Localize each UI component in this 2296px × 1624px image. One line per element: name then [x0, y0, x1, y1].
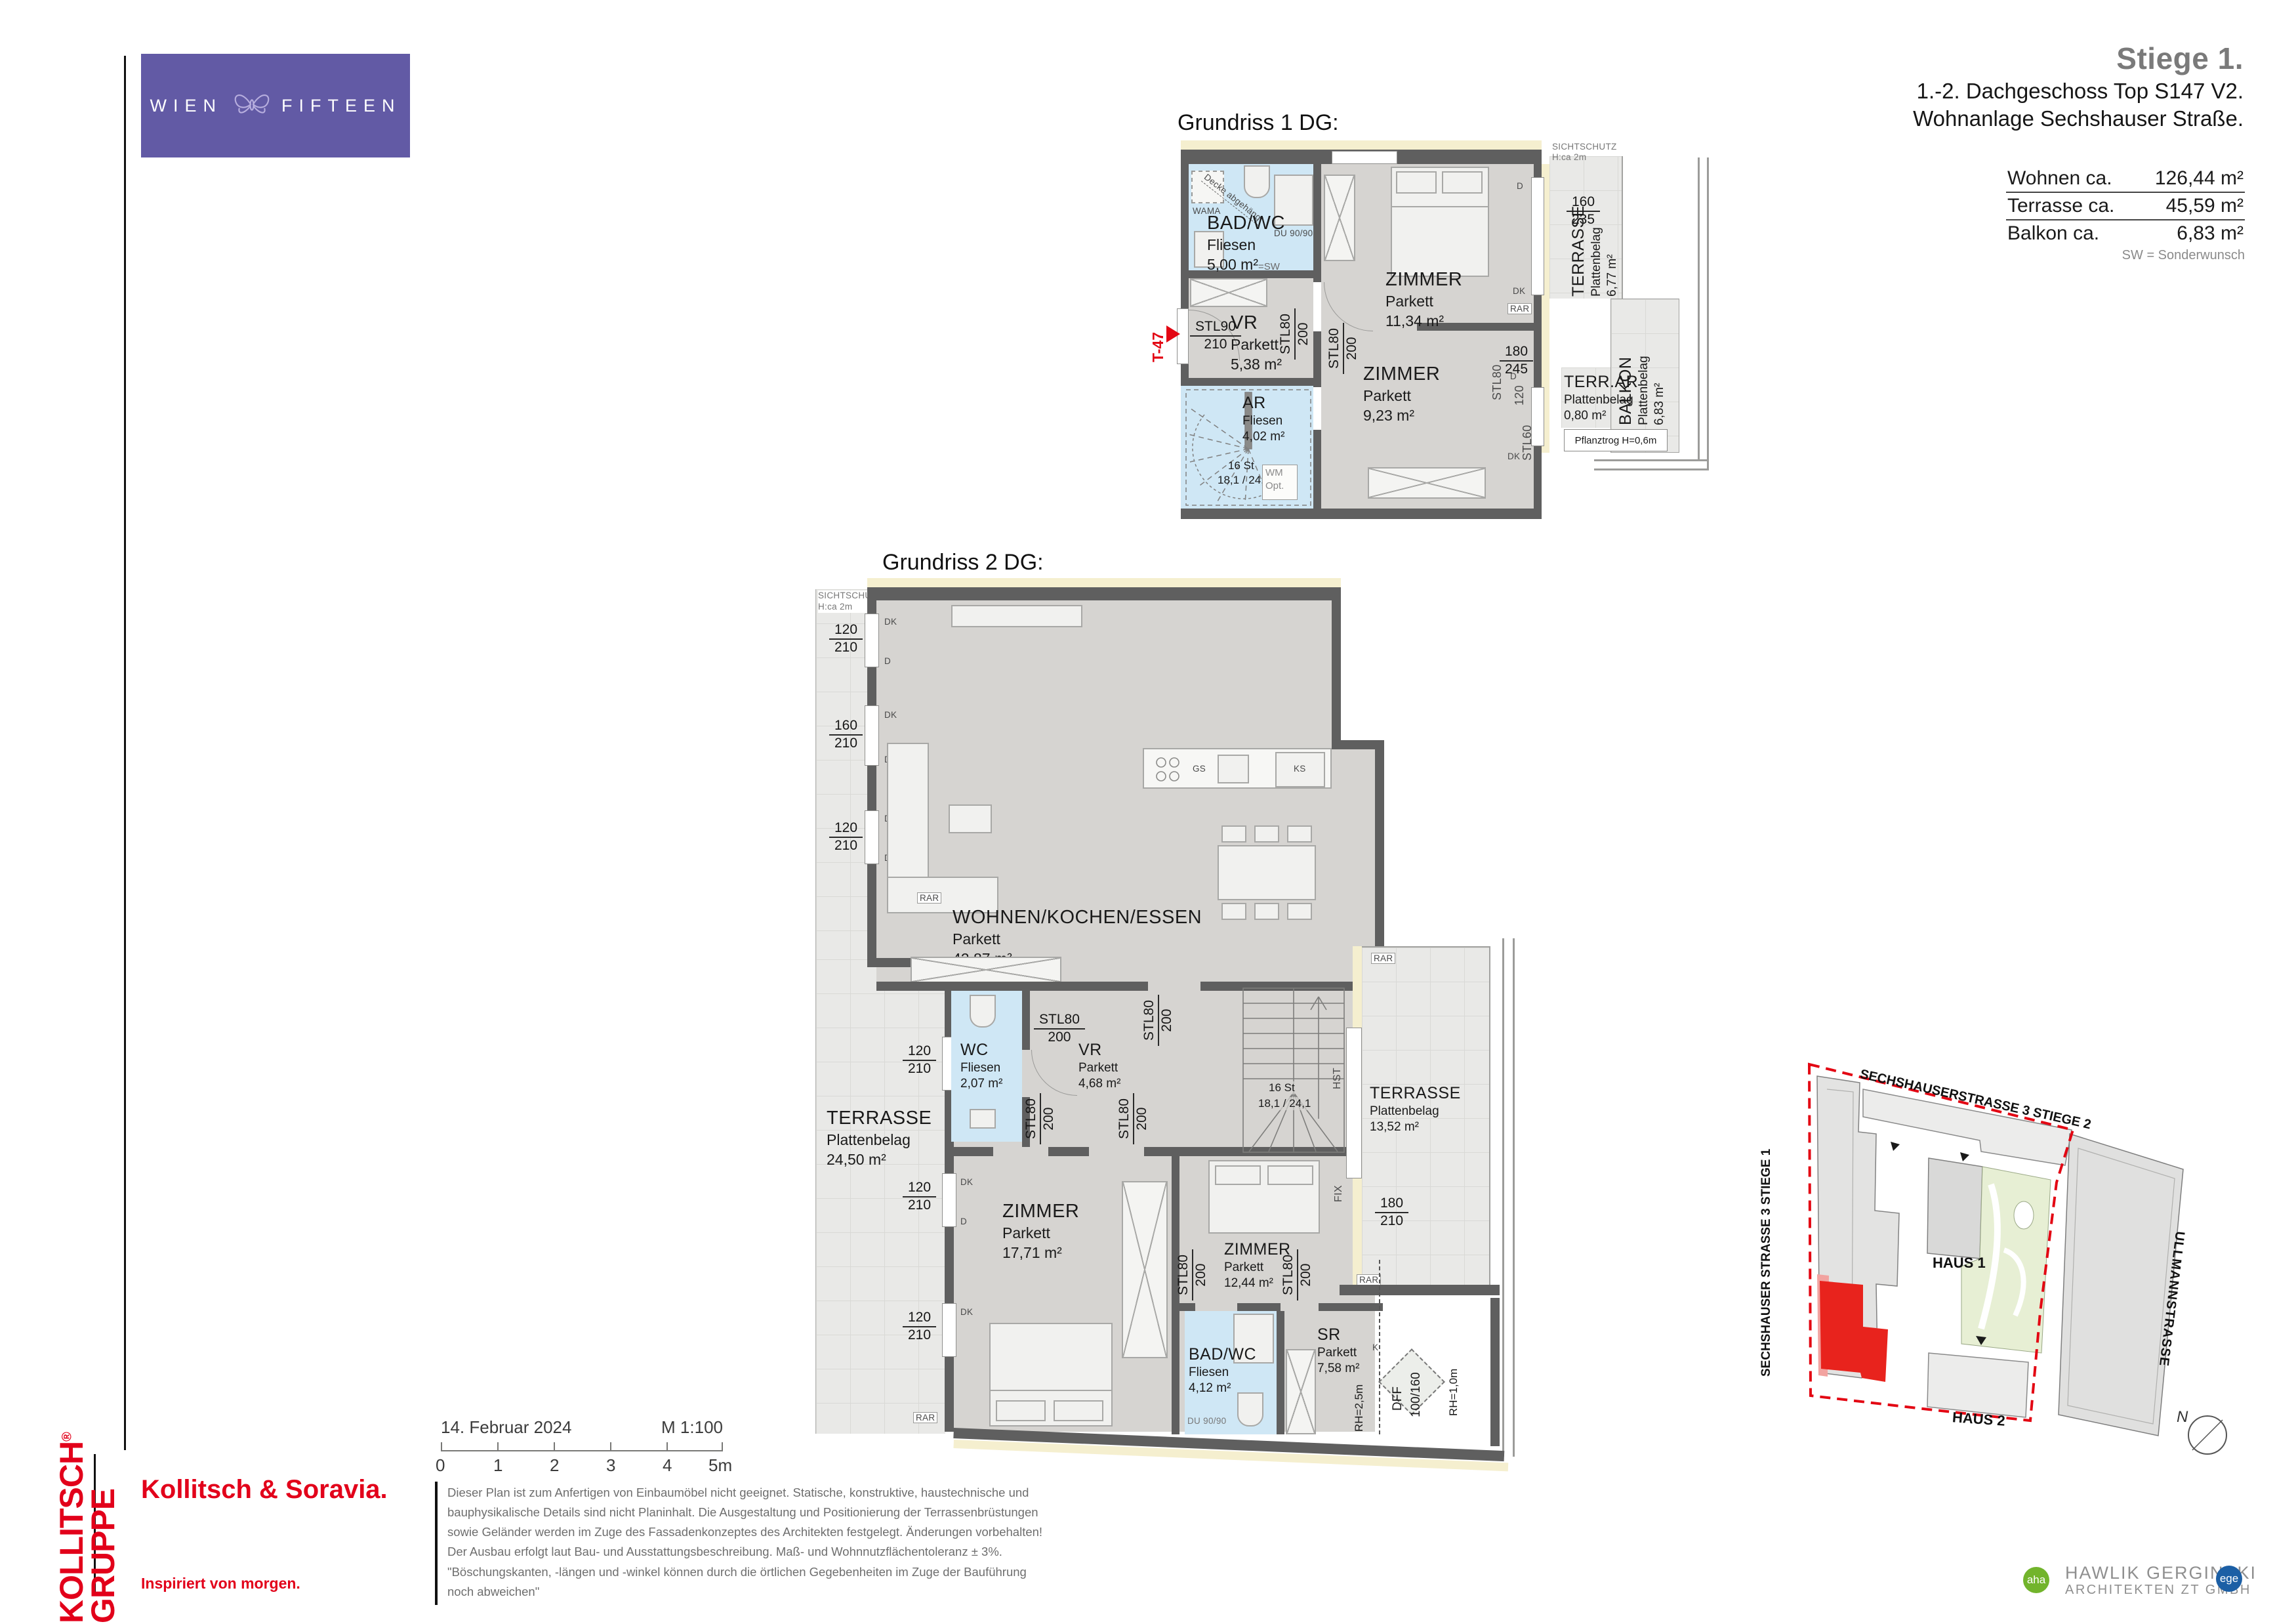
washbasin — [970, 1109, 996, 1129]
plan2-title: Grundriss 2 DG: — [882, 550, 1044, 575]
pillow — [1267, 1165, 1313, 1185]
area-note: SW = Sonderwunsch — [2006, 248, 2245, 263]
plan2-stair-steps: 16 St — [1269, 1081, 1295, 1094]
fridge-label: KS — [1294, 764, 1306, 774]
plan2-wall-bad-sr — [1277, 1311, 1284, 1434]
pillow — [1442, 171, 1483, 194]
plan2-wall-badrow-b — [1237, 1303, 1281, 1311]
gruppe-word: GRUPPE — [85, 1489, 121, 1623]
page-subtitle-1: 1.-2. Dachgeschoss Top S147 V2. — [1771, 79, 2244, 104]
plan1-door-dim-1: STL80 200 — [1278, 308, 1312, 360]
plan1-sichtschutz: SICHTSCHUTZ H:ca 2m — [1552, 142, 1617, 163]
area-value: 126,44 m² — [2155, 167, 2244, 190]
blanket-line — [1392, 206, 1488, 207]
plan-scale: M 1:100 — [630, 1417, 723, 1438]
plan1-ar-label: AR Fliesen 4,02 m² — [1242, 392, 1284, 446]
dim-120-210: 120210 — [903, 1180, 936, 1214]
scale-label-1: 1 — [493, 1455, 502, 1476]
area-row-wohnen: Wohnen ca. 126,44 m² — [2006, 165, 2245, 193]
kollitsch-gruppe-logo: KOLLITSCH® GRUPPE — [56, 1451, 130, 1623]
plan1-wm-option: WM Opt. — [1262, 465, 1298, 500]
dff-label: DFF — [1391, 1386, 1405, 1411]
plan2-bad-label: BAD/WC Fliesen 4,12 m² — [1189, 1344, 1256, 1397]
plan2-wall-living-bottom-a — [876, 982, 1148, 991]
chair — [1221, 903, 1246, 920]
plan1-unit-number: T-47 — [1149, 332, 1167, 362]
page-title: Stiege 1. — [1916, 41, 2244, 76]
scale-label-2: 2 — [550, 1455, 559, 1476]
chair — [1287, 903, 1312, 920]
toilet — [970, 995, 996, 1028]
window — [942, 1173, 956, 1227]
rh25-label: RH=2,5m — [1353, 1385, 1366, 1432]
door-label-dk: DK — [960, 1177, 973, 1187]
dim-120-210: 120210 — [903, 1310, 936, 1344]
area-label: Terrasse ca. — [2007, 195, 2114, 217]
plan2-wall-terr-bottom — [1340, 1285, 1500, 1295]
plan2-vr-label: VR Parkett 4,68 m² — [1078, 1039, 1120, 1093]
k-label: K — [1372, 1343, 1378, 1352]
area-row-terrasse: Terrasse ca. 45,59 m² — [2006, 193, 2245, 220]
plan2-rar-bottomleft: RAR — [913, 1412, 937, 1423]
plan1-stl60: STL60 — [1521, 425, 1534, 461]
plan1-wall-left-a — [1181, 164, 1189, 308]
plan2-wall-corr-a — [954, 1147, 993, 1156]
plan1-stair-steps: 16 St — [1228, 459, 1254, 472]
pillow — [1215, 1165, 1261, 1185]
roof-line — [1513, 938, 1515, 1457]
kollitsch-tagline: Inspiriert von morgen. — [141, 1575, 300, 1593]
kitchen-counter: GS KS — [1143, 748, 1332, 789]
site-unit-highlight — [1820, 1281, 1888, 1382]
bed — [1391, 167, 1489, 277]
dining-table — [1218, 845, 1316, 900]
site-haus2-label: HAUS 2 — [1952, 1409, 2005, 1430]
area-label: Wohnen ca. — [2007, 167, 2112, 190]
dff-divider — [1379, 1260, 1380, 1434]
scale-tick — [610, 1442, 611, 1451]
aha-logo: aha — [2023, 1567, 2049, 1593]
plan2-door-dim-sr: STL80200 — [1281, 1249, 1315, 1301]
area-table: Wohnen ca. 126,44 m² Terrasse ca. 45,59 … — [2006, 165, 2245, 263]
roof-line — [1707, 157, 1709, 470]
wien-fifteen-logo: WIEN FIFTEEN — [141, 54, 410, 157]
plan2-wall-right-upper — [1332, 600, 1341, 748]
window — [942, 1303, 956, 1357]
logo-text-fifteen: FIFTEEN — [281, 96, 401, 116]
page-subtitle-2: Wohnanlage Sechshauser Straße. — [1771, 106, 2244, 131]
scale-tick — [441, 1442, 442, 1451]
plan2-terrasse-links-label: TERRASSE Plattenbelag 24,50 m² — [827, 1106, 932, 1169]
site-haus2-building — [1927, 1353, 2028, 1417]
window — [865, 810, 879, 864]
window — [865, 614, 879, 667]
dishwasher-label: GS — [1193, 764, 1206, 774]
plan2-wall-badrow-a — [1179, 1303, 1195, 1311]
scale-label-0: 0 — [436, 1455, 445, 1476]
scale-label-4: 4 — [663, 1455, 672, 1476]
plan1-vr-wardrobe — [1190, 278, 1267, 307]
logo-text-wien: WIEN — [150, 96, 223, 116]
site-street-left: SECHSHAUSER STRASSE 3 STIEGE 1 — [1759, 1114, 1774, 1377]
disclaimer-line: sowie Geländer werden im Zuge des Fassad… — [447, 1522, 1042, 1542]
scale-tick — [666, 1442, 668, 1451]
entry-arrow-icon — [1166, 325, 1180, 343]
plan-date: 14. Februar 2024 — [441, 1417, 571, 1438]
plan2-wall-wc-a — [1022, 991, 1030, 1050]
hst-label: HST — [1332, 1068, 1343, 1089]
chair — [1254, 825, 1279, 843]
scale-label-5: 5m — [708, 1455, 732, 1476]
plan1-zimmer-klein-label: ZIMMER Parkett 9,23 m² — [1363, 362, 1440, 425]
plan2-cream-top — [867, 578, 1341, 587]
window-hst — [1346, 1028, 1362, 1178]
area-row-balkon: Balkon ca. 6,83 m² — [2006, 220, 2245, 247]
site-haus1-building — [1927, 1158, 1982, 1259]
disclaimer-rule — [435, 1482, 438, 1605]
door-label-dk: DK — [960, 1307, 973, 1317]
wardrobe — [1122, 1181, 1168, 1358]
plan1-window-top — [1332, 151, 1397, 164]
plan1-wall-int-v-a — [1313, 164, 1321, 282]
scale-tick — [554, 1442, 555, 1451]
scale-label-3: 3 — [606, 1455, 615, 1476]
plan1-terrar-label: TERR.AR Plattenbelag 0,80 m² — [1564, 371, 1638, 425]
chair — [1221, 825, 1246, 843]
plan1-zimmer-gross-label: ZIMMER Parkett 11,34 m² — [1385, 268, 1462, 331]
area-value: 45,59 m² — [2166, 195, 2244, 217]
plan1-120-right: 120 — [1513, 385, 1527, 406]
scale-tick — [722, 1442, 723, 1451]
dff-size-label: 100/160 — [1409, 1372, 1424, 1417]
plan1-title: Grundriss 1 DG: — [1178, 110, 1339, 136]
plan2-terrasse-rechts-label: TERRASSE Plattenbelag 13,52 m² — [1370, 1083, 1461, 1136]
door-label-d: D — [960, 1217, 967, 1226]
plan2-zimmer-links-label: ZIMMER Parkett 17,71 m² — [1002, 1199, 1079, 1262]
toilet — [1237, 1392, 1263, 1426]
ege-logo: ege — [2216, 1566, 2242, 1592]
pillow — [1396, 171, 1437, 194]
plan1-stl80-right: STL80 — [1490, 364, 1504, 400]
sideboard — [1368, 467, 1486, 499]
door-label-d: D — [884, 656, 891, 666]
plan1-wall-int-v-c — [1313, 430, 1321, 509]
dim-120-210: 120210 — [829, 820, 863, 854]
roof-line — [1594, 459, 1709, 461]
plan1-window-right-bedroom — [1531, 177, 1544, 295]
kitchen-sink — [1218, 755, 1249, 783]
butterfly-icon — [232, 89, 272, 123]
disclaimer-line: bauphysikalische Details sind nicht Plan… — [447, 1503, 1042, 1522]
plan1-pflanztrog: Pflanztrog H=0,6m — [1564, 429, 1668, 451]
sideboard — [951, 605, 1082, 627]
plan2-rar-living: RAR — [917, 892, 941, 904]
door-label-dk: DK — [884, 617, 897, 627]
coffee-table — [949, 804, 992, 833]
plan1-cream-top — [1181, 140, 1542, 150]
pillow — [1054, 1400, 1103, 1421]
roof-line — [1594, 468, 1709, 470]
plan2-sr-label: SR Parkett 7,58 m² — [1317, 1324, 1359, 1377]
rh1-label: RH=1,0m — [1447, 1369, 1460, 1416]
toilet — [1244, 165, 1270, 198]
plan1-wall-int-v-b — [1313, 331, 1321, 387]
pillow — [996, 1400, 1046, 1421]
plan1-bad-label: BAD/WC Fliesen 5,00 m²=SW — [1207, 211, 1285, 274]
wardrobe — [1286, 1349, 1316, 1434]
plan2-stair-dim: 18,1 / 24,1 — [1258, 1097, 1311, 1110]
plan1-terrdoor-dim: 180 245 — [1500, 344, 1533, 378]
sheet-left-rule — [124, 56, 126, 1450]
sideboard — [911, 957, 1061, 983]
site-north-label: N — [2177, 1408, 2188, 1426]
dim-160-210: 160210 — [829, 718, 863, 752]
roof-line — [1698, 157, 1700, 461]
staircase — [1242, 988, 1345, 1153]
chair — [1287, 825, 1312, 843]
shower-label: DU 90/90 — [1187, 1416, 1226, 1426]
plan1-rar-label: RAR — [1507, 303, 1532, 314]
plan2-rar-terr-bottom: RAR — [1357, 1274, 1381, 1285]
disclaimer-line: "Böschungskanten, -längen und -winkel kö… — [447, 1562, 1042, 1582]
plan2-wc-label: WC Fliesen 2,07 m² — [960, 1039, 1002, 1093]
plan1-entry-dim: STL90 210 — [1190, 319, 1241, 353]
floor-plan-sheet: WIEN FIFTEEN Stiege 1. 1.-2. Dachgeschos… — [0, 0, 2296, 1624]
window — [865, 705, 879, 766]
disclaimer-line: Der Ausbau erfolgt laut Bau- und Ausstat… — [447, 1542, 1042, 1562]
plan2-wall-corr-b — [1048, 1147, 1089, 1156]
site-haus1-label: HAUS 1 — [1933, 1255, 1986, 1272]
plan2-terrdoor-dim: 180210 — [1375, 1196, 1408, 1230]
disclaimer-line: noch abweichen" — [447, 1582, 1042, 1602]
door-label-dk: DK — [884, 710, 897, 720]
plan1-wall-right-b — [1534, 295, 1542, 387]
plan2-wall-top — [867, 587, 1341, 600]
plan2-wc-door-dim: STL80200 — [1034, 1012, 1085, 1046]
scale-tick — [497, 1442, 499, 1451]
kollitsch-soravia-logo: Kollitsch & Soravia. — [141, 1475, 388, 1505]
plan2-door-dim-zr: STL80200 — [1117, 1093, 1151, 1144]
plan1-wall-bottom — [1181, 509, 1542, 519]
plan1-wall-right-c — [1534, 446, 1542, 509]
bed — [1208, 1160, 1320, 1234]
registered-mark: ® — [60, 1432, 74, 1442]
roof-line — [1502, 938, 1504, 1457]
area-label: Balkon ca. — [2007, 222, 2099, 245]
chair — [1254, 903, 1279, 920]
wardrobe — [1324, 175, 1355, 261]
plan2-door-dim-vr: STL80200 — [1141, 995, 1176, 1046]
dim-120-210: 120210 — [903, 1043, 936, 1077]
door-label-dk: DK — [1507, 451, 1520, 461]
dim-120-210: 120210 — [829, 622, 863, 656]
plan2-door-dim-bad: STL80200 — [1176, 1249, 1210, 1301]
door-label-d: D — [1517, 181, 1523, 191]
plan1-wall-right-a — [1534, 164, 1542, 177]
fix-label: FIX — [1333, 1185, 1345, 1202]
plan2-wall-annex-right — [1490, 1298, 1500, 1446]
plan2-wall-badrow-c — [1319, 1303, 1383, 1311]
plan1-door-dim-2: STL80 200 — [1326, 323, 1361, 374]
disclaimer-line: Dieser Plan ist zum Anfertigen von Einba… — [447, 1483, 1042, 1503]
scale-bar — [441, 1441, 723, 1451]
blanket-line — [991, 1390, 1111, 1391]
plan1-terrasse-label: TERRASSE Plattenbelag 6,77 m² — [1568, 205, 1621, 297]
cooktop-icon — [1153, 755, 1183, 788]
disclaimer-text: Dieser Plan ist zum Anfertigen von Einba… — [447, 1483, 1042, 1602]
area-value: 6,83 m² — [2177, 222, 2244, 245]
door-label-dk: DK — [1513, 286, 1525, 296]
plan1-wall-int-h-ar — [1181, 378, 1313, 386]
plan2-door-dim-zl: STL80200 — [1023, 1093, 1057, 1144]
bed — [989, 1323, 1113, 1426]
plan2-rar-terr-top: RAR — [1371, 953, 1395, 964]
